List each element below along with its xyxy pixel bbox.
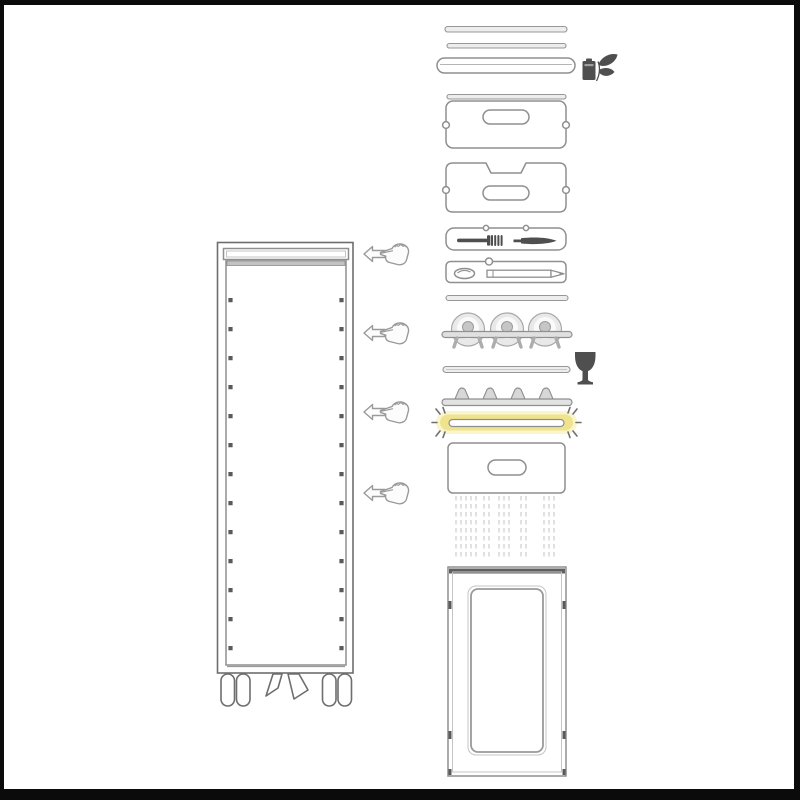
top-slat-upper	[445, 27, 567, 33]
hand-pointer-icon	[381, 244, 409, 265]
tray-with-handle-bottom	[448, 443, 565, 493]
tray-with-handle-notched	[443, 163, 570, 212]
highlighted-rail[interactable]	[432, 408, 581, 438]
tray-with-handle-plain	[443, 101, 570, 148]
slat-under-rail	[447, 95, 566, 100]
insert-cursor-row-3[interactable]	[364, 402, 409, 423]
insert-cursors	[364, 244, 409, 504]
top-rail-pill	[437, 58, 575, 73]
trolley-exploded-diagram	[0, 0, 800, 800]
handle-slot	[483, 186, 529, 200]
hand-pointer-icon	[381, 323, 409, 344]
slat-lower	[443, 367, 570, 373]
drip-guide-lines	[456, 496, 554, 557]
cutlery-tray-fork-knife	[446, 225, 566, 250]
page-frame	[0, 0, 800, 800]
trolley-cabinet	[226, 261, 346, 665]
service-trolley	[218, 243, 354, 707]
utensil-tray-opener-pencil	[446, 258, 566, 283]
hand-pointer-icon	[381, 483, 409, 504]
trolley-top-strip	[227, 261, 345, 266]
trolley-top-drawer	[224, 249, 349, 260]
slat-mid	[446, 296, 568, 301]
insert-cursor-row-2[interactable]	[364, 323, 409, 344]
brake-pedals	[266, 674, 308, 699]
top-slat-lower	[447, 44, 566, 49]
eco-battery-leaf-icon	[583, 54, 618, 81]
handle-slot	[488, 460, 526, 475]
wine-glass-icon	[575, 352, 596, 385]
insert-cursor-row-4[interactable]	[364, 483, 409, 504]
diagram-canvas	[0, 0, 800, 800]
pronged-rail	[442, 388, 572, 406]
door-window	[471, 589, 543, 752]
insert-cursor-row-1[interactable]	[364, 244, 409, 265]
pencil-icon	[487, 270, 564, 277]
handle-slot	[483, 110, 529, 124]
exploded-parts	[432, 27, 618, 777]
plate-rack-three-plates	[442, 313, 572, 347]
plate-rail	[442, 332, 572, 338]
door-top-bar	[449, 569, 565, 574]
door-panel	[448, 567, 566, 776]
hand-pointer-icon	[381, 402, 409, 423]
caster-wheels	[221, 674, 352, 706]
